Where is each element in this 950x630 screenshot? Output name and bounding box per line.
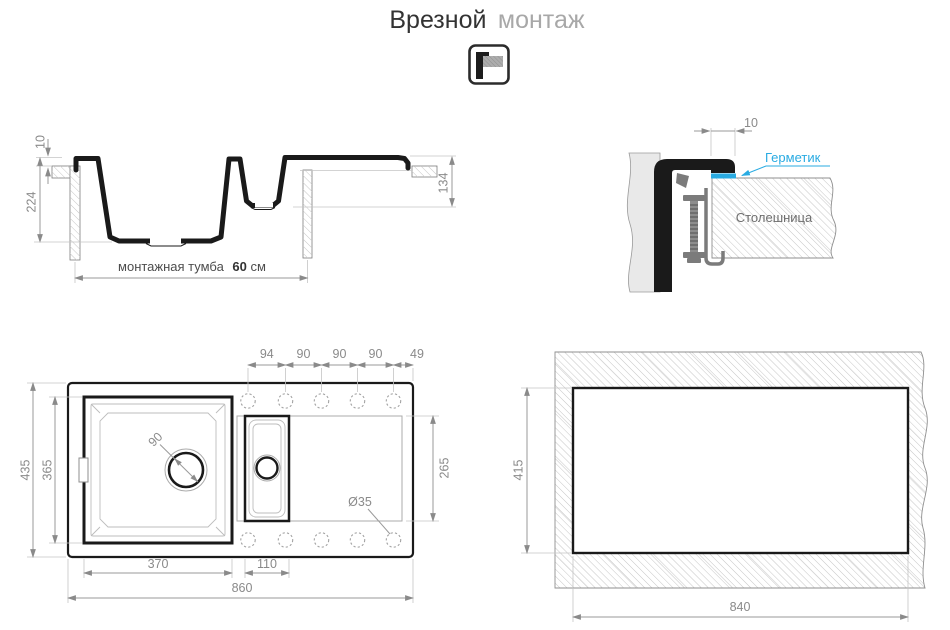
dim-bowl-inner-depth-label: 365 (40, 460, 54, 481)
cabinet-width-label: монтажная тумба 60 см (118, 259, 266, 274)
dim-hole-spacing-3: 90 (333, 347, 347, 361)
small-bowl (245, 416, 289, 521)
countertop-block-right (412, 166, 437, 177)
dim-cutout-depth-label: 415 (511, 460, 525, 481)
title-main: Врезной (389, 6, 486, 34)
dim-small-bowl-width-label: 110 (257, 557, 277, 571)
icon-countertop (483, 56, 503, 67)
countertop-label: Столешница (736, 210, 813, 225)
hole-diameter-label: Ø35 (348, 495, 372, 509)
title-sub: монтаж (498, 6, 585, 34)
cabinet-wall-left (70, 166, 80, 260)
cabinet-wall-middle (303, 170, 312, 258)
technical-drawing-page: Врезной монтаж (0, 0, 950, 630)
dim-hole-spacing-1: 94 (260, 347, 274, 361)
dim-hole-spacing-4: 90 (369, 347, 383, 361)
dim-hole-spacing-5: 49 (410, 347, 424, 361)
dim-hole-spacing-2: 90 (297, 347, 311, 361)
overflow-slot (79, 458, 88, 482)
flush-mount-icon (470, 46, 509, 84)
cutout-rect (573, 388, 908, 553)
main-bowl: 90 (79, 397, 232, 543)
dim-cutout-width-label: 840 (730, 600, 751, 614)
view-cutout: 415 840 (511, 352, 927, 622)
sealant-label: Герметик (765, 150, 821, 165)
dim-overall-width-label: 860 (232, 581, 253, 595)
dim-drainer-depth-label: 265 (437, 458, 451, 479)
sealant-strip (711, 174, 736, 179)
dim-edge-overhang-label: 10 (744, 116, 758, 130)
dim-small-bowl-depth-label: 134 (436, 173, 450, 194)
dim-bowl-depth-label: 224 (24, 192, 38, 213)
dim-bowl-width-label: 370 (148, 557, 169, 571)
sink-installation-drawing: Врезной монтаж (0, 0, 950, 630)
dim-overall-depth-label: 435 (18, 460, 32, 481)
dim-rim-height-label: 10 (33, 135, 47, 149)
